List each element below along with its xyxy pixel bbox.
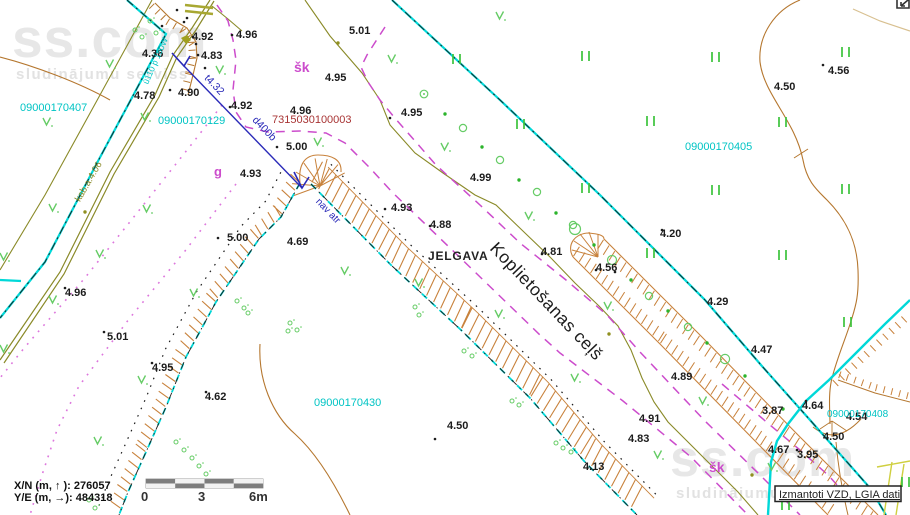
svg-text:4.67: 4.67: [768, 444, 789, 456]
svg-text:4.89: 4.89: [671, 371, 692, 383]
svg-text:09000170408: 09000170408: [827, 409, 889, 420]
svg-text:g: g: [214, 164, 222, 179]
svg-text:sludinājumu serviss: sludinājumu serviss: [16, 66, 189, 83]
svg-text:4.95: 4.95: [152, 362, 173, 374]
svg-text:6m: 6m: [249, 489, 268, 504]
svg-text:09000170407: 09000170407: [20, 102, 87, 114]
svg-text:Izmantoti VZD, LGIA dati: Izmantoti VZD, LGIA dati: [779, 489, 900, 501]
svg-text:09000170405: 09000170405: [685, 141, 752, 153]
svg-text:3: 3: [198, 489, 205, 504]
svg-text:5.00: 5.00: [286, 141, 307, 153]
svg-text:4.69: 4.69: [287, 236, 308, 248]
svg-text:3.95: 3.95: [797, 449, 818, 461]
svg-text:4.13: 4.13: [583, 461, 604, 473]
svg-text:4.62: 4.62: [205, 391, 226, 403]
svg-text:4.95: 4.95: [401, 107, 422, 119]
svg-text:4.83: 4.83: [201, 50, 222, 62]
svg-text:4.92: 4.92: [192, 31, 213, 43]
svg-text:4.99: 4.99: [470, 172, 491, 184]
svg-text:4.56: 4.56: [596, 262, 617, 274]
svg-text:4.96: 4.96: [236, 29, 257, 41]
svg-text:JELGAVA: JELGAVA: [428, 249, 489, 263]
svg-text:4.95: 4.95: [325, 72, 346, 84]
svg-text:4.47: 4.47: [751, 344, 772, 356]
svg-text:5.00: 5.00: [227, 232, 248, 244]
svg-text:4.50: 4.50: [447, 420, 468, 432]
svg-text:5.01: 5.01: [107, 331, 128, 343]
svg-text:šk: šk: [294, 59, 310, 75]
svg-text:4.88: 4.88: [430, 219, 451, 231]
svg-text:4.83: 4.83: [628, 433, 649, 445]
svg-text:4.96: 4.96: [65, 287, 86, 299]
svg-text:09000170430: 09000170430: [314, 397, 381, 409]
svg-text:0: 0: [141, 489, 148, 504]
svg-text:4.29: 4.29: [707, 296, 728, 308]
svg-text:4.78: 4.78: [134, 90, 155, 102]
svg-text:4.93: 4.93: [240, 168, 261, 180]
svg-text:4.92: 4.92: [231, 100, 252, 112]
svg-text:5.01: 5.01: [349, 25, 370, 37]
svg-text:šk: šk: [709, 459, 725, 475]
svg-text:X/N (m, ↑ ): 276057: X/N (m, ↑ ): 276057: [14, 480, 111, 492]
svg-text:Y/E (m, →): 484318: Y/E (m, →): 484318: [14, 492, 112, 504]
svg-text:4.81: 4.81: [541, 246, 562, 258]
svg-text:3.87: 3.87: [762, 405, 783, 417]
svg-text:4.50: 4.50: [774, 81, 795, 93]
svg-text:4.91: 4.91: [639, 413, 660, 425]
svg-text:7315030100003: 7315030100003: [272, 114, 352, 126]
svg-text:4.64: 4.64: [802, 400, 824, 412]
svg-text:4.93: 4.93: [391, 202, 412, 214]
svg-text:4.56: 4.56: [828, 65, 849, 77]
svg-text:09000170129: 09000170129: [158, 115, 225, 127]
svg-text:4.50: 4.50: [823, 431, 844, 443]
svg-text:4.90: 4.90: [178, 87, 199, 99]
svg-text:4.20: 4.20: [660, 228, 681, 240]
